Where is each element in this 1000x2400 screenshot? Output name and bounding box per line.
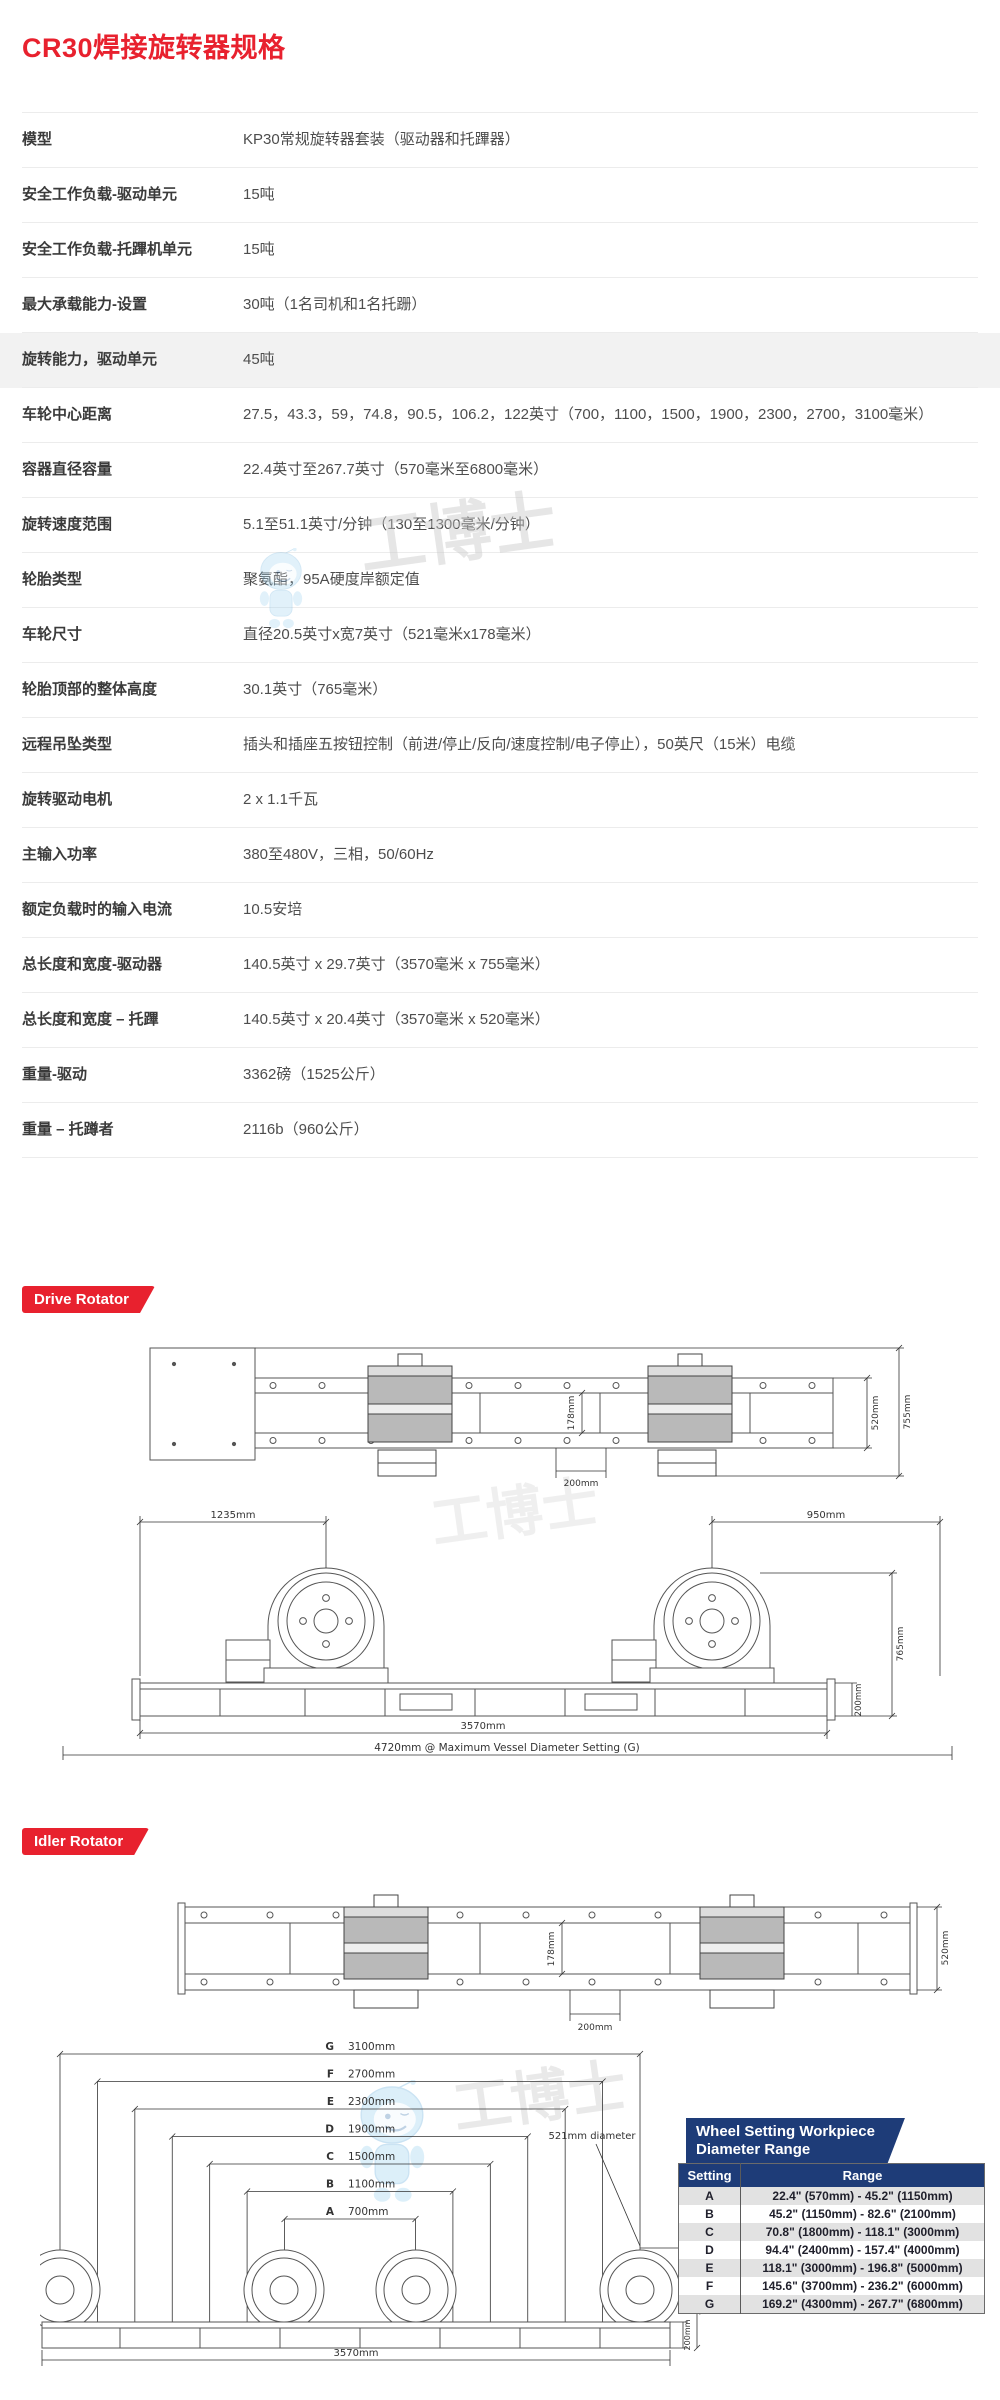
spec-label: 最大承载能力-设置 xyxy=(22,295,243,315)
wheel-setting-table-title: Wheel Setting Workpiece Diameter Range xyxy=(686,2118,905,2165)
spec-value: 22.4英寸至267.7英寸（570毫米至6800毫米） xyxy=(243,460,978,480)
spec-value: 140.5英寸 x 20.4英寸（3570毫米 x 520毫米） xyxy=(243,1010,978,1030)
spec-label: 总长度和宽度-驱动器 xyxy=(22,955,243,975)
dimension-label: 3570mm xyxy=(461,1721,506,1732)
spec-value: 3362磅（1525公斤） xyxy=(243,1065,978,1085)
setting-letter-label: G xyxy=(325,2041,334,2053)
spec-row: 总长度和宽度-驱动器140.5英寸 x 29.7英寸（3570毫米 x 755毫… xyxy=(22,938,978,993)
setting-letter-label: F xyxy=(327,2069,334,2081)
spec-value: 30吨（1名司机和1名托跚） xyxy=(243,295,978,315)
setting-letter-label: E xyxy=(327,2096,334,2108)
setting-letter-label: D xyxy=(325,2124,334,2136)
spec-row: 模型KP30常规旋转器套装（驱动器和托蹕器） xyxy=(22,113,978,168)
drive-top-wheel-assembly xyxy=(368,1354,452,1476)
wheel-table-row: E118.1" (3000mm) - 196.8" (5000mm) xyxy=(679,2259,985,2277)
wheel-table-row: G169.2" (4300mm) - 267.7" (6800mm) xyxy=(679,2295,985,2314)
spec-label: 轮胎类型 xyxy=(22,570,243,590)
dimension-label: 521mm diameter xyxy=(548,2131,636,2142)
spec-value: 2 x 1.1千瓦 xyxy=(243,790,978,810)
dimension-label: 200mm xyxy=(578,2023,613,2033)
dimension-label: 1235mm xyxy=(211,1510,256,1521)
wheel-range-cell: 169.2" (4300mm) - 267.7" (6800mm) xyxy=(741,2295,985,2314)
wheel-range-cell: 94.4" (2400mm) - 157.4" (4000mm) xyxy=(741,2241,985,2259)
spec-row: 额定负载时的输入电流10.5安培 xyxy=(22,883,978,938)
spec-label: 总长度和宽度 – 托蹕 xyxy=(22,1010,243,1030)
spec-label: 旋转能力，驱动单元 xyxy=(22,350,243,370)
spec-label: 重量-驱动 xyxy=(22,1065,243,1085)
drive-rotator-badge-label: Drive Rotator xyxy=(34,1291,129,1308)
spec-value: KP30常规旋转器套装（驱动器和托蹕器） xyxy=(243,130,978,150)
spec-value: 聚氨酯，95A硬度岸额定值 xyxy=(243,570,978,590)
spec-value: 380至480V，三相，50/60Hz xyxy=(243,845,978,865)
spec-value: 插头和插座五按钮控制（前进/停止/反向/速度控制/电子停止），50英尺（15米）… xyxy=(243,735,978,755)
spec-row: 容器直径容量22.4英寸至267.7英寸（570毫米至6800毫米） xyxy=(22,443,978,498)
dimension-label: 765mm xyxy=(896,1627,906,1662)
drive-top-wheel-assembly xyxy=(648,1354,732,1476)
setting-value-label: 1900mm xyxy=(348,2124,395,2136)
spec-value: 10.5安培 xyxy=(243,900,978,920)
wheel-setting-cell: E xyxy=(679,2259,741,2277)
wheel-table-header-setting: Setting xyxy=(679,2164,741,2188)
wheel-table-row: C70.8" (1800mm) - 118.1" (3000mm) xyxy=(679,2223,985,2241)
spec-label: 主输入功率 xyxy=(22,845,243,865)
spec-row: 车轮中心距离27.5，43.3，59，74.8，90.5，106.2，122英寸… xyxy=(22,388,978,443)
wheel-setting-title-line1: Wheel Setting Workpiece xyxy=(696,2123,875,2141)
setting-value-label: 1500mm xyxy=(348,2151,395,2163)
wheel-range-cell: 22.4" (570mm) - 45.2" (1150mm) xyxy=(741,2187,985,2205)
wheel-range-cell: 45.2" (1150mm) - 82.6" (2100mm) xyxy=(741,2205,985,2223)
dimension-label: 178mm xyxy=(547,1932,557,1967)
idler-rotator-top-view-drawing: 178mm 200mm 520mm xyxy=(170,1885,955,2045)
spec-label: 安全工作负载-驱动单元 xyxy=(22,185,243,205)
spec-row: 安全工作负载-托蹕机单元15吨 xyxy=(22,223,978,278)
spec-row: 旋转能力，驱动单元45吨 xyxy=(22,333,978,388)
wheel-range-cell: 145.6" (3700mm) - 236.2" (6000mm) xyxy=(741,2277,985,2295)
spec-row: 旋转速度范围5.1至51.1英寸/分钟（130至1300毫米/分钟） xyxy=(22,498,978,553)
spec-label: 模型 xyxy=(22,130,243,150)
idler-front-base-frame xyxy=(42,2322,670,2348)
idler-rotator-badge-label: Idler Rotator xyxy=(34,1833,123,1850)
spec-table: 模型KP30常规旋转器套装（驱动器和托蹕器）安全工作负载-驱动单元15吨安全工作… xyxy=(22,112,978,1158)
wheel-setting-title-line2: Diameter Range xyxy=(696,2141,875,2159)
wheel-setting-cell: D xyxy=(679,2241,741,2259)
dimension-label: 950mm xyxy=(807,1510,846,1521)
idler-setting-dimensions: G3100mmF2700mmE2300mmD1900mmC1500mmB1100… xyxy=(57,2041,643,2326)
spec-label: 旋转驱动电机 xyxy=(22,790,243,810)
spec-value: 15吨 xyxy=(243,240,978,260)
spec-row: 主输入功率380至480V，三相，50/60Hz xyxy=(22,828,978,883)
wheel-setting-cell: F xyxy=(679,2277,741,2295)
spec-value: 15吨 xyxy=(243,185,978,205)
wheel-table-row: F145.6" (3700mm) - 236.2" (6000mm) xyxy=(679,2277,985,2295)
idler-top-wheel-assembly xyxy=(700,1895,784,2008)
drive-front-base-frame xyxy=(132,1679,835,1720)
wheel-setting-cell: B xyxy=(679,2205,741,2223)
spec-value: 45吨 xyxy=(243,350,978,370)
spec-row: 轮胎顶部的整体高度30.1英寸（765毫米） xyxy=(22,663,978,718)
drive-front-wheel-assembly xyxy=(612,1568,774,1683)
spec-row: 车轮尺寸直径20.5英寸x宽7英寸（521毫米x178毫米） xyxy=(22,608,978,663)
spec-row: 总长度和宽度 – 托蹕140.5英寸 x 20.4英寸（3570毫米 x 520… xyxy=(22,993,978,1048)
spec-value: 30.1英寸（765毫米） xyxy=(243,680,978,700)
spec-row: 旋转驱动电机2 x 1.1千瓦 xyxy=(22,773,978,828)
wheel-table-row: A22.4" (570mm) - 45.2" (1150mm) xyxy=(679,2187,985,2205)
wheel-range-cell: 70.8" (1800mm) - 118.1" (3000mm) xyxy=(741,2223,985,2241)
wheel-setting-cell: A xyxy=(679,2187,741,2205)
drive-rotator-badge: Drive Rotator xyxy=(22,1286,155,1313)
spec-value: 5.1至51.1英寸/分钟（130至1300毫米/分钟） xyxy=(243,515,978,535)
page-title: CR30焊接旋转器规格 xyxy=(22,26,286,65)
spec-label: 安全工作负载-托蹕机单元 xyxy=(22,240,243,260)
spec-label: 额定负载时的输入电流 xyxy=(22,900,243,920)
spec-label: 轮胎顶部的整体高度 xyxy=(22,680,243,700)
wheel-table-header-range: Range xyxy=(741,2164,985,2188)
spec-row: 远程吊坠类型插头和插座五按钮控制（前进/停止/反向/速度控制/电子停止），50英… xyxy=(22,718,978,773)
dimension-label: 200mm xyxy=(564,1479,599,1489)
setting-value-label: 700mm xyxy=(348,2206,389,2218)
spec-label: 重量 – 托蹲者 xyxy=(22,1120,243,1140)
wheel-setting-table: Setting Range A22.4" (570mm) - 45.2" (11… xyxy=(678,2163,985,2314)
setting-value-label: 1100mm xyxy=(348,2179,395,2191)
setting-letter-label: A xyxy=(326,2206,335,2218)
spec-row: 重量 – 托蹲者2116b（960公斤） xyxy=(22,1103,978,1158)
idler-rotator-front-view-drawing: G3100mmF2700mmE2300mmD1900mmC1500mmB1100… xyxy=(40,2038,712,2370)
setting-value-label: 3100mm xyxy=(348,2041,395,2053)
wheel-setting-cell: G xyxy=(679,2295,741,2314)
dimension-label: 178mm xyxy=(567,1396,577,1431)
drive-rotator-front-view-drawing: 1235mm 950mm 200mm 765mm 3570mm 4720mm @… xyxy=(55,1508,960,1766)
spec-row: 最大承载能力-设置30吨（1名司机和1名托跚） xyxy=(22,278,978,333)
spec-row: 轮胎类型聚氨酯，95A硬度岸额定值 xyxy=(22,553,978,608)
spec-row: 安全工作负载-驱动单元15吨 xyxy=(22,168,978,223)
dimension-label: 520mm xyxy=(871,1396,881,1431)
drive-front-wheel-assembly xyxy=(226,1568,388,1683)
spec-value: 2116b（960公斤） xyxy=(243,1120,978,1140)
dimension-label: 520mm xyxy=(941,1931,951,1966)
wheel-table-row: B45.2" (1150mm) - 82.6" (2100mm) xyxy=(679,2205,985,2223)
dimension-label: 4720mm @ Maximum Vessel Diameter Setting… xyxy=(374,1742,640,1754)
spec-label: 远程吊坠类型 xyxy=(22,735,243,755)
setting-value-label: 2700mm xyxy=(348,2069,395,2081)
setting-letter-label: B xyxy=(326,2179,334,2191)
spec-value: 直径20.5英寸x宽7英寸（521毫米x178毫米） xyxy=(243,625,978,645)
spec-value: 27.5，43.3，59，74.8，90.5，106.2，122英寸（700，1… xyxy=(243,405,978,425)
dimension-label: 755mm xyxy=(903,1395,913,1430)
wheel-table-row: D94.4" (2400mm) - 157.4" (4000mm) xyxy=(679,2241,985,2259)
dimension-label: 200mm xyxy=(854,1684,864,1717)
spec-label: 旋转速度范围 xyxy=(22,515,243,535)
drive-front-dimensions xyxy=(63,1516,952,1760)
page: CR30焊接旋转器规格 模型KP30常规旋转器套装（驱动器和托蹕器）安全工作负载… xyxy=(0,0,1000,2400)
dimension-label: 3570mm xyxy=(334,2348,379,2359)
setting-value-label: 2300mm xyxy=(348,2096,395,2108)
idler-front-wheels xyxy=(40,2250,680,2330)
idler-top-wheel-assembly xyxy=(344,1895,428,2008)
spec-value: 140.5英寸 x 29.7英寸（3570毫米 x 755毫米） xyxy=(243,955,978,975)
wheel-setting-cell: C xyxy=(679,2223,741,2241)
drive-rotator-top-view-drawing: 178mm 200mm 520mm 755mm xyxy=(130,1338,955,1498)
spec-label: 车轮尺寸 xyxy=(22,625,243,645)
idler-rotator-badge: Idler Rotator xyxy=(22,1828,149,1855)
dimension-label: 200mm xyxy=(683,2319,692,2350)
wheel-range-cell: 118.1" (3000mm) - 196.8" (5000mm) xyxy=(741,2259,985,2277)
setting-letter-label: C xyxy=(326,2151,334,2163)
spec-label: 车轮中心距离 xyxy=(22,405,243,425)
spec-label: 容器直径容量 xyxy=(22,460,243,480)
spec-row: 重量-驱动3362磅（1525公斤） xyxy=(22,1048,978,1103)
